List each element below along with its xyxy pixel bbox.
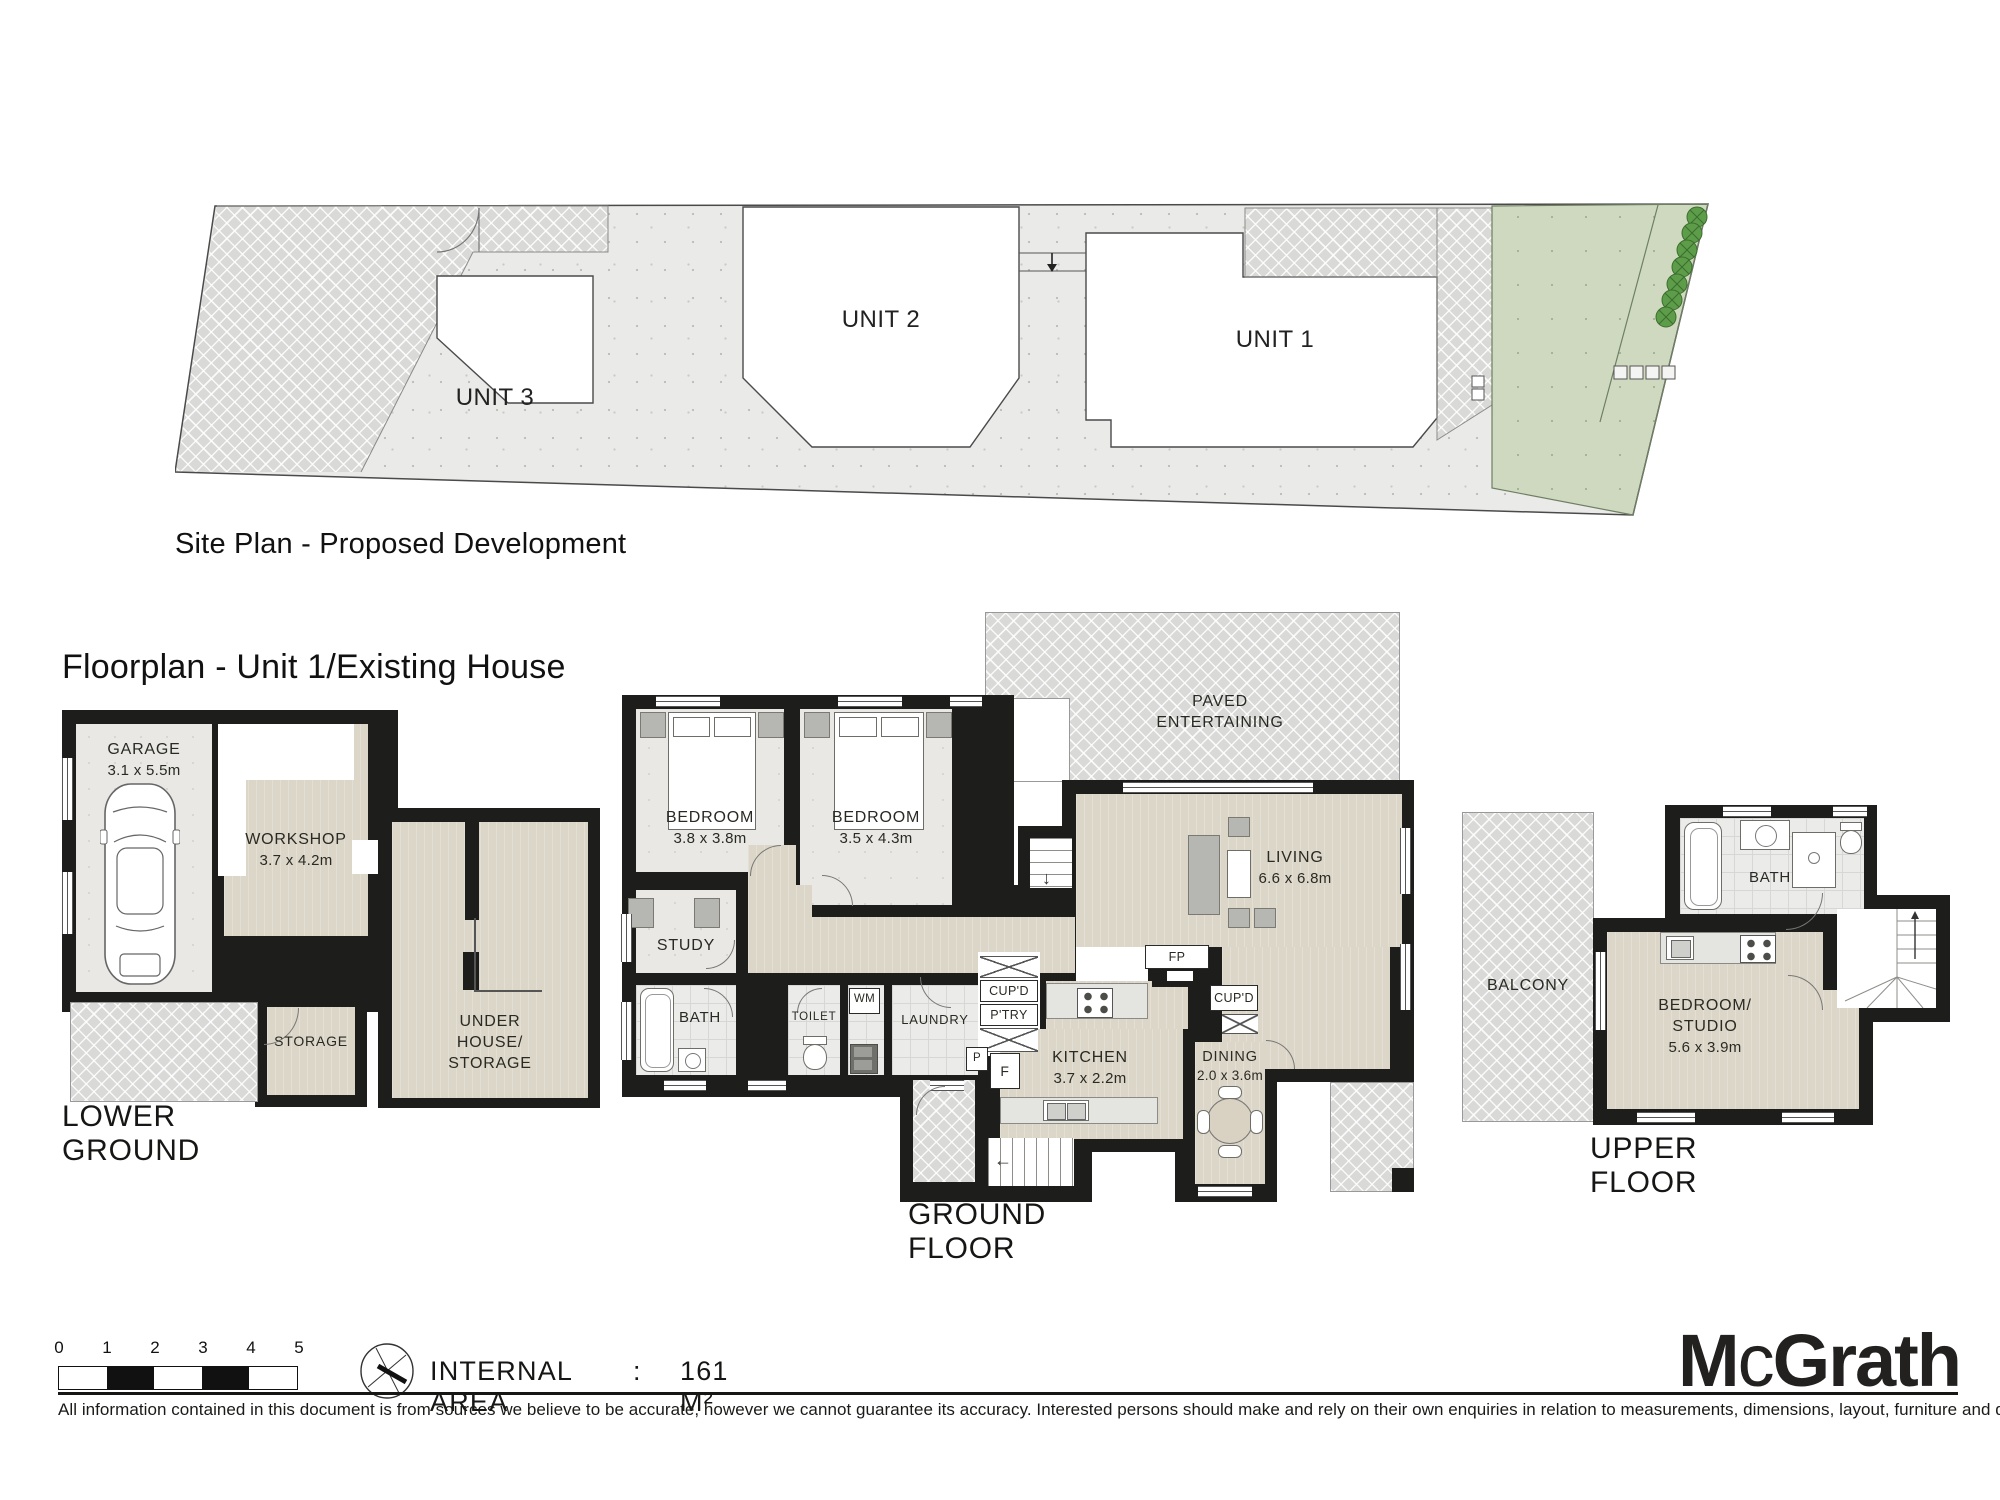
dining-table-icon [1207, 1098, 1253, 1144]
nightstand [640, 712, 666, 738]
scale-segment [107, 1367, 155, 1389]
room-dims: 3.7 x 4.2m [224, 851, 368, 871]
scale-bar [58, 1366, 298, 1390]
room-dims: 6.6 x 6.8m [1220, 869, 1370, 889]
room-name: BEDROOM [636, 808, 784, 829]
cupboard-label: CUP'D [980, 983, 1038, 999]
desk-chair-icon [694, 898, 720, 928]
lawn-outline [1492, 204, 1708, 515]
basin-bowl [685, 1053, 701, 1069]
window [1400, 828, 1411, 894]
site-plan: UNIT 3 UNIT 2 UNIT 1 [175, 200, 1710, 530]
living-label: LIVING 6.6 x 6.8m [1220, 848, 1370, 888]
room-name: LIVING [1220, 848, 1370, 869]
toilet-label: TOILET [786, 1010, 842, 1025]
scale-tick: 3 [194, 1338, 212, 1358]
armchair-icon [1228, 817, 1250, 837]
step-line [474, 990, 542, 992]
workshop-void [218, 724, 354, 780]
pillow [839, 717, 877, 737]
wm-label: WM [849, 992, 880, 1007]
nightstand [926, 712, 952, 738]
room-name: STORAGE [392, 1054, 588, 1075]
dining-chair [1250, 1110, 1263, 1134]
shower-drain [1808, 852, 1820, 864]
window [621, 1002, 632, 1060]
internal-area-separator: : [633, 1356, 642, 1387]
stairs-upper-run [1030, 838, 1072, 888]
room-name: DINING [1188, 1048, 1272, 1067]
car-icon [100, 778, 180, 990]
bath-label: BATH [1726, 868, 1814, 888]
scale-tick: 5 [290, 1338, 308, 1358]
site-plan-lines [175, 200, 1710, 530]
window [1833, 806, 1867, 817]
room-dims: 3.7 x 2.2m [1020, 1069, 1160, 1089]
pantry-label: P'TRY [980, 1007, 1038, 1023]
room-dims: 5.6 x 3.9m [1630, 1038, 1780, 1058]
lawn-inner-boundary [1600, 205, 1658, 422]
scale-segment [59, 1367, 107, 1389]
room-dims: 3.1 x 5.5m [76, 761, 212, 781]
window [621, 914, 632, 962]
winder-stairs-icon [1837, 909, 1936, 1008]
window [664, 1080, 706, 1091]
toilet-icon [803, 1044, 827, 1070]
room-name: KITCHEN [1020, 1048, 1160, 1069]
dining-label: DINING 2.0 x 3.6m [1188, 1048, 1272, 1084]
bedroom2-label: BEDROOM 3.5 x 4.3m [800, 808, 952, 848]
area-name: PAVED [1100, 692, 1340, 713]
scale-segment [154, 1367, 202, 1389]
window [656, 696, 720, 707]
herringbone-top-outline [1245, 208, 1437, 277]
window [950, 696, 982, 707]
driveway-apron [70, 1002, 258, 1102]
toilet-tank [1840, 822, 1862, 831]
wall [465, 822, 479, 920]
herringbone-strip-outline [1437, 208, 1492, 440]
logo-text: Grath [1773, 1319, 1960, 1402]
dining-chair [1218, 1086, 1242, 1099]
room-name: BEDROOM [800, 808, 952, 829]
window [1595, 952, 1606, 1030]
unit1-rear-doors [1472, 376, 1484, 400]
window [62, 872, 73, 934]
scale-segment [249, 1367, 297, 1389]
kitchen-label: KITCHEN 3.7 x 2.2m [1020, 1048, 1160, 1088]
unit1-label: UNIT 1 [1205, 326, 1345, 354]
bath-label: BATH [664, 1008, 736, 1028]
window [1400, 944, 1411, 1010]
hall-floor [748, 885, 812, 973]
laundry-label: LAUNDRY [888, 1012, 982, 1029]
toilet-tank [803, 1036, 827, 1045]
nightstand [758, 712, 784, 738]
fireplace-label: FP [1145, 949, 1209, 965]
sink-basin [1067, 1103, 1086, 1120]
mcgrath-logo: McGrath [1678, 1324, 1960, 1398]
scale-tick: 4 [242, 1338, 260, 1358]
bedroom-studio-label: BEDROOM/ STUDIO 5.6 x 3.9m [1630, 996, 1780, 1057]
sink-basin [1047, 1103, 1066, 1120]
disclaimer-text: All information contained in this docume… [58, 1400, 1958, 1420]
fridge-label: F [990, 1062, 1020, 1080]
kitchen-bulkhead [1076, 947, 1148, 981]
bedroom1-label: BEDROOM 3.8 x 3.8m [636, 808, 784, 848]
armchair-icon [1228, 908, 1250, 928]
under-house-label: UNDER HOUSE/ STORAGE [392, 1012, 588, 1074]
stove-icon [1740, 935, 1776, 963]
bifold-door-icon [980, 956, 1038, 978]
stairs-arrow-icon: ↓ [1042, 868, 1051, 889]
step-line [474, 918, 476, 992]
study-label: STUDY [636, 936, 736, 957]
room-name: BEDROOM/ [1630, 996, 1780, 1017]
room-dims: 2.0 x 3.6m [1188, 1067, 1272, 1085]
pillow [881, 717, 919, 737]
bathtub-inner [645, 994, 671, 1068]
footer-divider [58, 1392, 1958, 1395]
stove-icon [1077, 988, 1113, 1018]
toilet-icon [1840, 830, 1862, 854]
garage-label: GARAGE 3.1 x 5.5m [76, 740, 212, 780]
bifold-door-icon [1222, 1014, 1258, 1034]
sink-basin [1671, 940, 1691, 958]
laundry-tub-bowl [854, 1047, 872, 1057]
room-name: WORKSHOP [224, 830, 368, 851]
dining-chair [1218, 1145, 1242, 1158]
pillow [714, 717, 751, 737]
logo-text: c [1738, 1319, 1773, 1402]
fireplace-inset [1167, 971, 1193, 981]
unit2-label: UNIT 2 [811, 306, 951, 334]
stairs-arrow-icon: ← [994, 1150, 1012, 1171]
workshop-label: WORKSHOP 3.7 x 4.2m [224, 830, 368, 870]
scale-tick: 1 [98, 1338, 116, 1358]
sofa-icon [1188, 835, 1220, 915]
tree-icons [1656, 207, 1707, 327]
balcony-label: BALCONY [1462, 976, 1594, 997]
bathtub-inner [1690, 828, 1718, 906]
vanity-bowl [1755, 825, 1777, 847]
floorplan-document: UNIT 3 UNIT 2 UNIT 1 Site Plan - Propose… [0, 0, 2000, 1500]
room-name: HOUSE/ [392, 1033, 588, 1054]
window [1637, 1112, 1695, 1123]
cupboard-label: CUP'D [1210, 990, 1258, 1006]
scale-tick: 0 [50, 1338, 68, 1358]
area-name: ENTERTAINING [1100, 713, 1340, 734]
scale-tick: 2 [146, 1338, 164, 1358]
site-plan-caption: Site Plan - Proposed Development [175, 528, 626, 561]
room-dims: 3.5 x 4.3m [800, 829, 952, 849]
logo-text: M [1678, 1319, 1738, 1402]
p-label: P [966, 1051, 988, 1066]
stepping-stones [1614, 366, 1675, 379]
wall [1392, 1168, 1414, 1192]
pillow [673, 717, 710, 737]
window [1723, 806, 1771, 817]
window [1198, 1186, 1252, 1197]
storage-label: STORAGE [263, 1032, 359, 1050]
paved-entertaining-label: PAVED ENTERTAINING [1100, 692, 1340, 734]
dining-chair [1197, 1110, 1210, 1134]
window [62, 758, 73, 820]
window [1782, 1112, 1834, 1123]
window [838, 696, 902, 707]
nightstand [804, 712, 830, 738]
room-name: STUDIO [1630, 1017, 1780, 1038]
wall [463, 952, 479, 990]
entry-arrow-icon [1047, 253, 1057, 272]
armchair-icon [1254, 908, 1276, 928]
balcony-floor [1462, 812, 1594, 1122]
window [1123, 782, 1313, 793]
site-door-arc [437, 208, 479, 252]
unit3-label: UNIT 3 [425, 384, 565, 412]
floorplan-heading: Floorplan - Unit 1/Existing House [62, 648, 566, 687]
laundry-tub-bowl [854, 1060, 872, 1070]
scale-segment [202, 1367, 250, 1389]
window [748, 1080, 786, 1091]
upper-floor-title: UPPER FLOOR [1590, 1132, 1697, 1200]
room-name: GARAGE [76, 740, 212, 761]
ground-floor-title: GROUND FLOOR [908, 1198, 1046, 1266]
lower-ground-title: LOWER GROUND [62, 1100, 200, 1168]
room-dims: 3.8 x 3.8m [636, 829, 784, 849]
room-name: UNDER [392, 1012, 588, 1033]
